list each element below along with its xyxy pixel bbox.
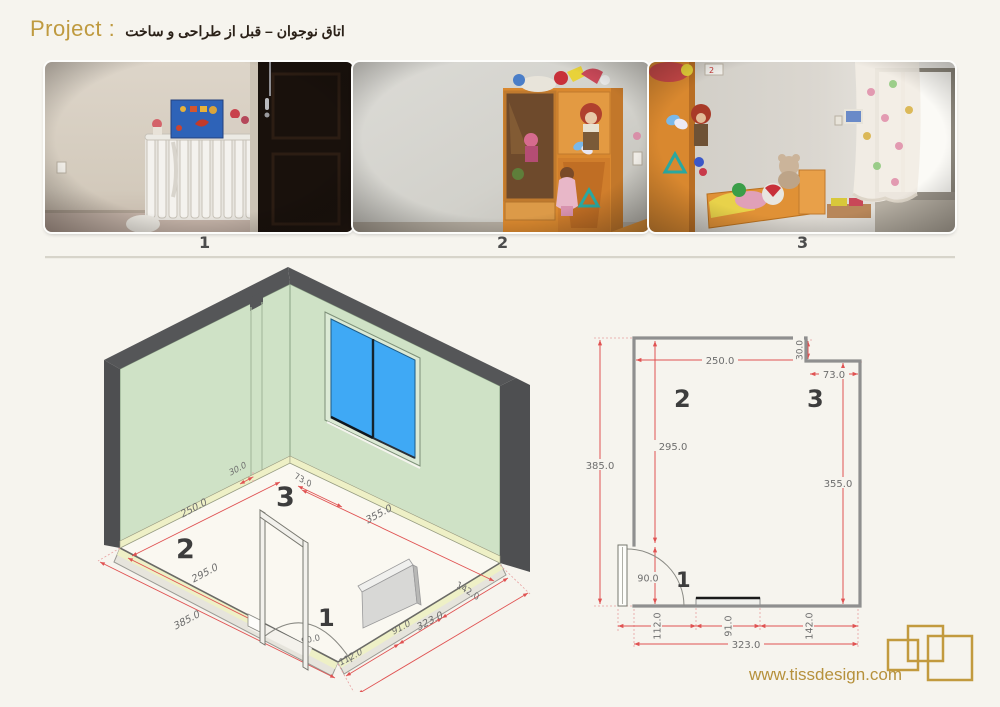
iso-viewpoint-2: 2 [176, 534, 195, 565]
photo-2-scene [353, 62, 649, 232]
photo-room-view-2 [353, 62, 649, 232]
svg-text:385.0: 385.0 [173, 609, 201, 633]
iso-viewpoint-1: 1 [318, 604, 335, 632]
section-divider [45, 256, 955, 259]
svg-text:73.0: 73.0 [823, 370, 845, 381]
iso-viewpoint-3: 3 [276, 482, 295, 513]
photo-room-view-3: 2 [649, 62, 955, 232]
svg-text:295.0: 295.0 [659, 442, 688, 453]
svg-text:355.0: 355.0 [824, 479, 853, 490]
svg-text:142.0: 142.0 [805, 612, 816, 639]
isometric-room-view: 30.0 250.0 295.0 385.0 73.0 355.0 112.0 … [90, 262, 550, 692]
svg-text:112.0: 112.0 [653, 612, 664, 639]
svg-text:250.0: 250.0 [706, 356, 735, 367]
svg-text:385.0: 385.0 [586, 461, 615, 472]
plan-radiator [696, 598, 760, 605]
plan-viewpoint-1: 1 [676, 568, 691, 592]
svg-text:90.0: 90.0 [637, 574, 658, 585]
plan-viewpoint-3: 3 [807, 385, 824, 413]
svg-text:91.0: 91.0 [724, 615, 735, 636]
photo-caption-1: 1 [199, 233, 210, 252]
svg-text:30.0: 30.0 [796, 340, 806, 360]
floor-plan-view: 250.0 30.0 73.0 295.0 385.0 355.0 90.0 1… [580, 315, 880, 675]
project-subtitle-farsi: اتاق نوجوان – قبل از طراحی و ساخت [125, 23, 345, 40]
project-label: Project : [30, 16, 115, 42]
photo-1-scene [45, 62, 353, 232]
svg-text:323.0: 323.0 [732, 640, 761, 651]
website-link[interactable]: www.tissdesign.com [749, 665, 902, 685]
tiss-logo [886, 624, 978, 694]
header: Project : اتاق نوجوان – قبل از طراحی و س… [30, 16, 345, 46]
photo-room-view-1 [45, 62, 353, 232]
photo-caption-3: 3 [797, 233, 808, 252]
photo-caption-2: 2 [497, 233, 508, 252]
plan-viewpoint-2: 2 [674, 385, 691, 413]
project-sheet: Project : اتاق نوجوان – قبل از طراحی و س… [0, 0, 1000, 707]
photo-3-scene: 2 [649, 62, 955, 232]
